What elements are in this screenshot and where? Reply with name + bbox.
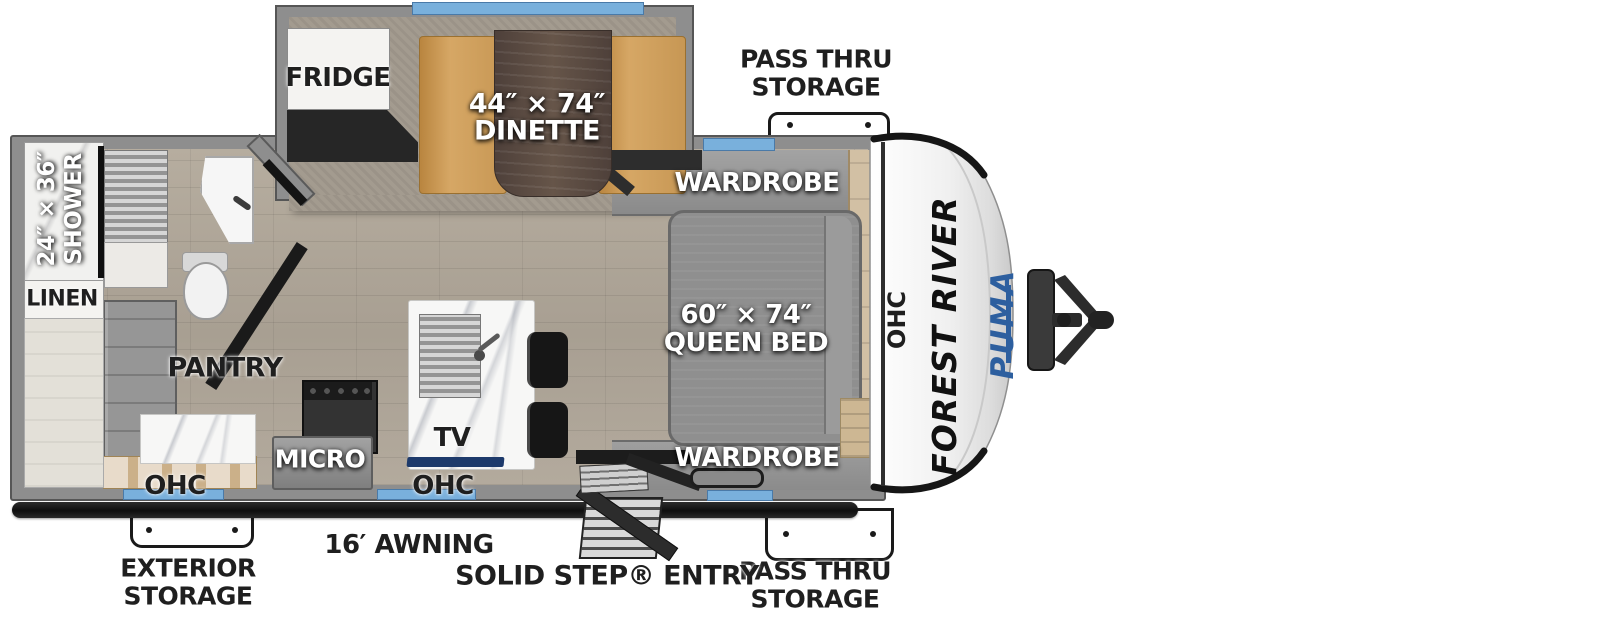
linen-label: LINEN — [26, 287, 98, 312]
queen-size-label: 60″ × 74″ — [681, 300, 812, 330]
shower-label: 24″ × 36″ SHOWER — [34, 151, 88, 266]
exterior-storage-label-line1: EXTERIOR — [120, 554, 256, 583]
awning-bar — [12, 502, 858, 518]
forest-river-logo: FOREST RIVER — [925, 196, 964, 476]
puma-logo-underline — [1006, 285, 1011, 363]
stool — [527, 402, 568, 458]
slideout-window — [412, 2, 644, 15]
ohc-label-left: OHC — [144, 471, 205, 501]
shower-name-line: SHOWER — [61, 151, 88, 266]
door-rivet — [146, 527, 152, 533]
shower-size-line: 24″ × 36″ — [34, 151, 61, 266]
pass-thru-top-label-line2: STORAGE — [751, 73, 880, 102]
fridge-label: FRIDGE — [285, 63, 390, 93]
sink-cover — [419, 314, 481, 398]
entry-door-window — [707, 490, 773, 501]
wardrobe-bottom-label: WARDROBE — [675, 443, 840, 473]
pantry-label: PANTRY — [167, 353, 282, 384]
kitchen-counter — [140, 414, 256, 464]
pass-thru-top-label-line1: PASS THRU — [740, 45, 892, 74]
rv-floorplan-canvas: OHC FOREST RIVER PUMA FRIDGE PANTRY TV O… — [0, 0, 1600, 619]
front-ohc-label: OHC — [883, 291, 911, 349]
stool — [527, 332, 568, 388]
door-rivet — [783, 531, 789, 537]
solid-step-entry-label: SOLID STEP® ENTRY — [455, 561, 759, 592]
door-rivet — [870, 531, 876, 537]
puma-logo: PUMA — [985, 269, 1021, 380]
tv-label: TV — [434, 423, 471, 453]
bedroom-top-window — [703, 138, 775, 151]
pass-thru-bottom-label-line1: PASS THRU — [739, 557, 891, 586]
toilet-bowl — [183, 262, 229, 320]
rear-tall-cabinet — [24, 318, 104, 488]
hitch-coupler — [1088, 311, 1114, 329]
micro-label: MICRO — [275, 445, 366, 474]
door-rivet — [787, 122, 793, 128]
wardrobe-top-accent — [608, 150, 702, 170]
awning-label: 16′ AWNING — [324, 530, 493, 560]
wardrobe-top-label: WARDROBE — [675, 168, 840, 198]
exterior-storage-label-line2: STORAGE — [123, 582, 252, 611]
queen-bed-label: QUEEN BED — [664, 328, 828, 358]
dinette-label: DINETTE — [474, 116, 600, 147]
pass-thru-bottom-label-line2: STORAGE — [750, 585, 879, 614]
shower-door-track — [98, 146, 104, 278]
bathroom-vanity — [104, 242, 168, 288]
bathroom-tambour-cabinet — [104, 150, 168, 244]
stove-burners — [304, 382, 372, 400]
ohc-label-right: OHC — [412, 471, 473, 501]
door-rivet — [232, 527, 238, 533]
hitch-jack — [1057, 313, 1071, 327]
propane-box — [1028, 270, 1054, 370]
tv-unit — [406, 457, 504, 467]
front-cap-graphic: OHC FOREST RIVER PUMA — [850, 128, 1120, 500]
